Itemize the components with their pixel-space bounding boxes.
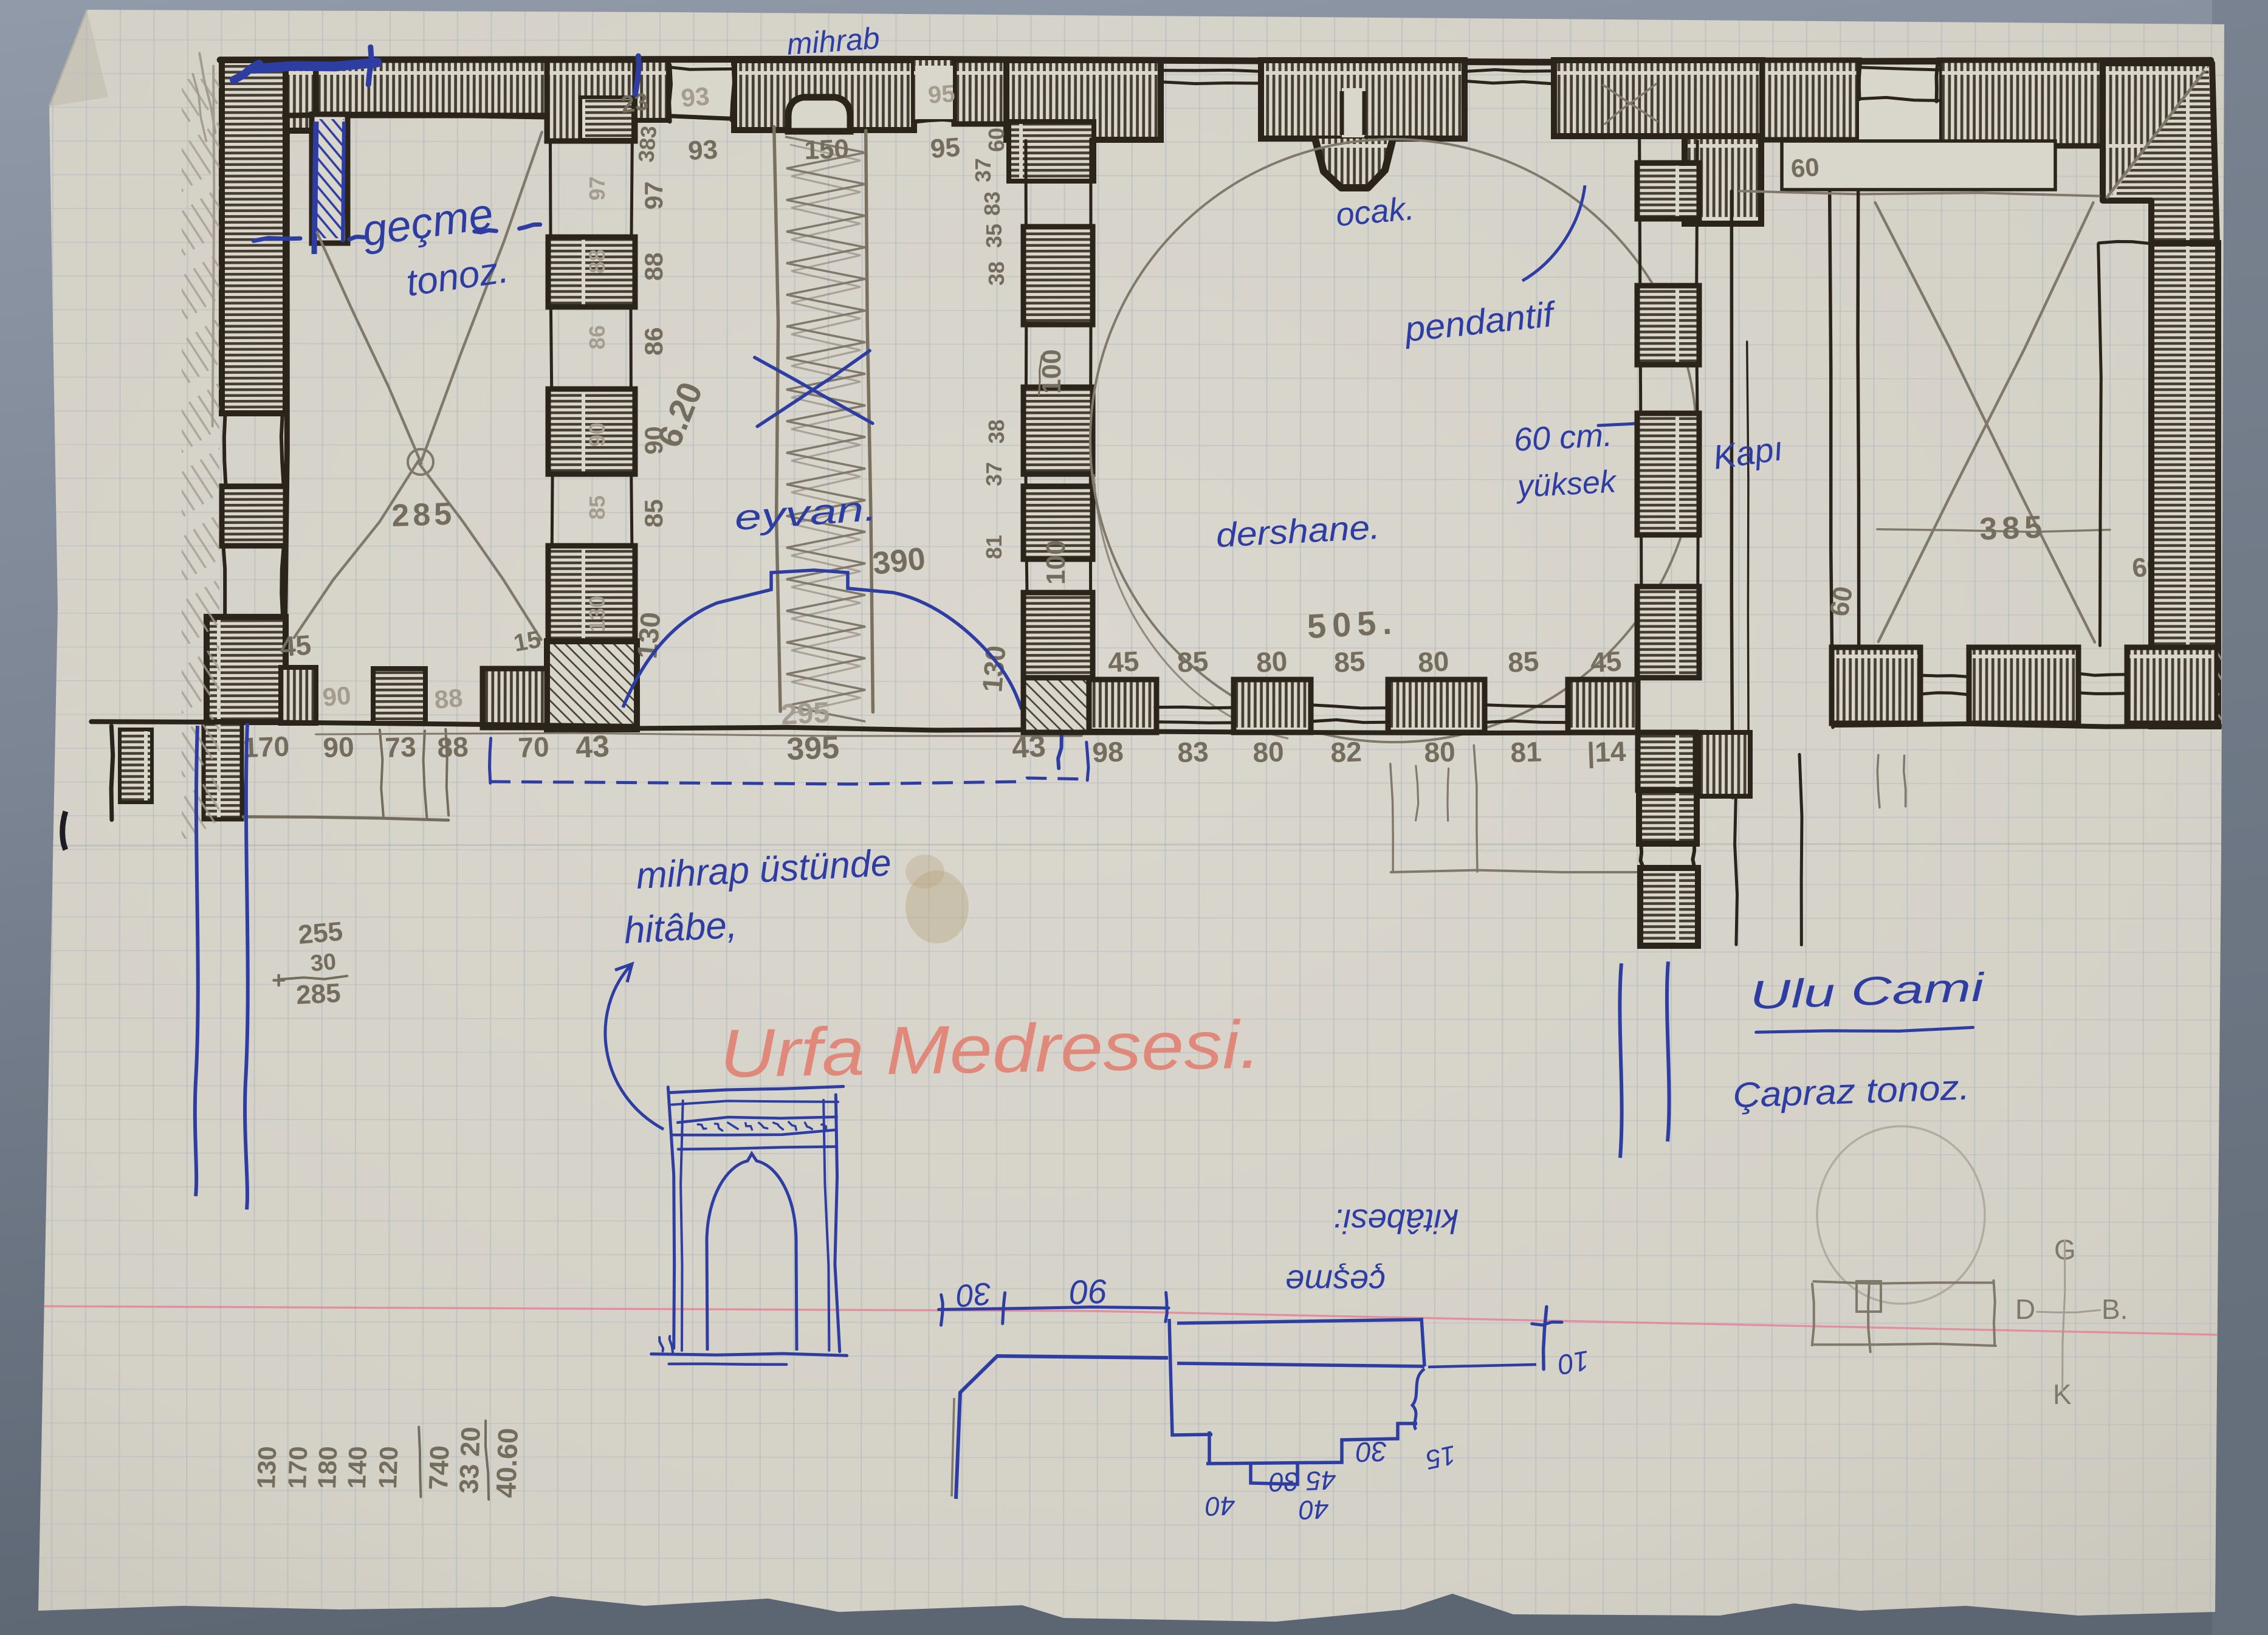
- svg-text:740: 740: [424, 1445, 455, 1490]
- svg-text:yüksek: yüksek: [1515, 464, 1619, 504]
- svg-text:45: 45: [1107, 645, 1140, 678]
- svg-text:80: 80: [1417, 645, 1450, 678]
- svg-text:60: 60: [1824, 584, 1859, 619]
- svg-text:40: 40: [1204, 1490, 1235, 1521]
- svg-text:+: +: [272, 967, 286, 994]
- svg-text:86: 86: [585, 325, 610, 349]
- svg-text:130: 130: [631, 611, 666, 660]
- svg-text:88: 88: [433, 683, 464, 714]
- svg-text:100: 100: [1041, 540, 1071, 585]
- svg-text:85: 85: [1507, 645, 1540, 678]
- svg-text:38: 38: [984, 419, 1009, 444]
- svg-text:Urfa Medresesi.: Urfa Medresesi.: [719, 1006, 1261, 1092]
- svg-text:81: 81: [981, 535, 1006, 559]
- svg-text:88: 88: [585, 249, 610, 274]
- svg-text:80: 80: [1256, 645, 1288, 678]
- svg-text:B.: B.: [2101, 1293, 2128, 1325]
- svg-text:30: 30: [1355, 1436, 1387, 1468]
- svg-text:150: 150: [804, 134, 850, 165]
- svg-text:Ulu Cami: Ulu Cami: [1749, 964, 1987, 1017]
- svg-text:60 cm.: 60 cm.: [1513, 417, 1613, 458]
- svg-text:120: 120: [373, 1446, 403, 1490]
- svg-text:85: 85: [639, 499, 668, 528]
- svg-text:90: 90: [585, 422, 610, 447]
- svg-text:45: 45: [279, 629, 312, 663]
- svg-text:170: 170: [242, 730, 290, 763]
- svg-text:88: 88: [437, 731, 469, 763]
- svg-text:395: 395: [786, 730, 840, 767]
- svg-text:385: 385: [1979, 509, 2047, 547]
- svg-text:83: 83: [980, 191, 1005, 216]
- svg-text:95: 95: [927, 80, 956, 109]
- svg-text:30: 30: [955, 1275, 993, 1313]
- svg-text:40: 40: [1298, 1494, 1329, 1525]
- svg-text:45: 45: [1590, 645, 1623, 678]
- svg-text:383: 383: [633, 125, 661, 163]
- svg-text:37: 37: [971, 158, 995, 182]
- svg-text:505.: 505.: [1306, 602, 1398, 645]
- svg-text:180: 180: [312, 1446, 342, 1490]
- svg-text:85: 85: [1333, 645, 1366, 678]
- svg-text:81: 81: [1510, 735, 1542, 768]
- svg-text:255: 255: [297, 917, 344, 950]
- svg-text:130: 130: [252, 1446, 281, 1490]
- svg-text:38: 38: [984, 261, 1009, 286]
- svg-text:95: 95: [929, 133, 961, 164]
- svg-text:30: 30: [309, 949, 337, 977]
- svg-text:390: 390: [871, 541, 927, 582]
- svg-text:60: 60: [984, 128, 1009, 152]
- svg-text:85: 85: [585, 495, 610, 520]
- svg-text:97: 97: [639, 181, 668, 210]
- svg-text:73: 73: [385, 731, 417, 763]
- svg-text:10: 10: [1555, 1344, 1592, 1381]
- svg-text:33 20: 33 20: [454, 1427, 486, 1495]
- svg-text:hitâbe,: hitâbe,: [623, 904, 738, 952]
- svg-text:93: 93: [680, 81, 711, 112]
- svg-text:130: 130: [976, 644, 1011, 694]
- svg-text:45 30: 45 30: [1268, 1465, 1336, 1497]
- svg-text:40.60: 40.60: [490, 1427, 524, 1498]
- svg-text:80: 80: [1424, 735, 1456, 768]
- svg-text:43: 43: [575, 729, 610, 765]
- svg-text:98: 98: [1092, 735, 1124, 768]
- svg-text:çeşme: çeşme: [1285, 1263, 1386, 1301]
- svg-text:Çapraz tonoz.: Çapraz tonoz.: [1732, 1067, 1970, 1115]
- svg-text:37: 37: [981, 462, 1006, 486]
- svg-text:90: 90: [321, 681, 352, 712]
- svg-text:90: 90: [1069, 1272, 1108, 1312]
- svg-text:97: 97: [585, 176, 610, 201]
- svg-text:88: 88: [639, 252, 668, 281]
- svg-text:93: 93: [687, 134, 718, 165]
- svg-text:140: 140: [342, 1446, 372, 1490]
- svg-text:60: 60: [1790, 153, 1820, 183]
- svg-text:285: 285: [391, 496, 456, 534]
- svg-text:kitâbesi:: kitâbesi:: [1334, 1202, 1459, 1241]
- svg-text:70: 70: [518, 731, 550, 763]
- svg-text:35: 35: [981, 224, 1006, 248]
- svg-text:85: 85: [1177, 645, 1209, 678]
- svg-text:130: 130: [585, 596, 610, 632]
- svg-text:86: 86: [639, 327, 668, 356]
- svg-text:ocak.: ocak.: [1335, 190, 1416, 233]
- svg-text:mihrab: mihrab: [786, 21, 881, 61]
- svg-text:285: 285: [295, 978, 342, 1010]
- svg-text:D: D: [2015, 1293, 2035, 1325]
- svg-text:90: 90: [323, 731, 355, 763]
- svg-text:82: 82: [1330, 735, 1363, 768]
- svg-text:295: 295: [780, 697, 831, 731]
- svg-text:170: 170: [283, 1446, 312, 1490]
- svg-text:|14: |14: [1587, 735, 1627, 768]
- svg-text:15: 15: [512, 626, 543, 657]
- svg-text:80: 80: [1253, 735, 1285, 768]
- svg-text:83: 83: [1177, 735, 1209, 768]
